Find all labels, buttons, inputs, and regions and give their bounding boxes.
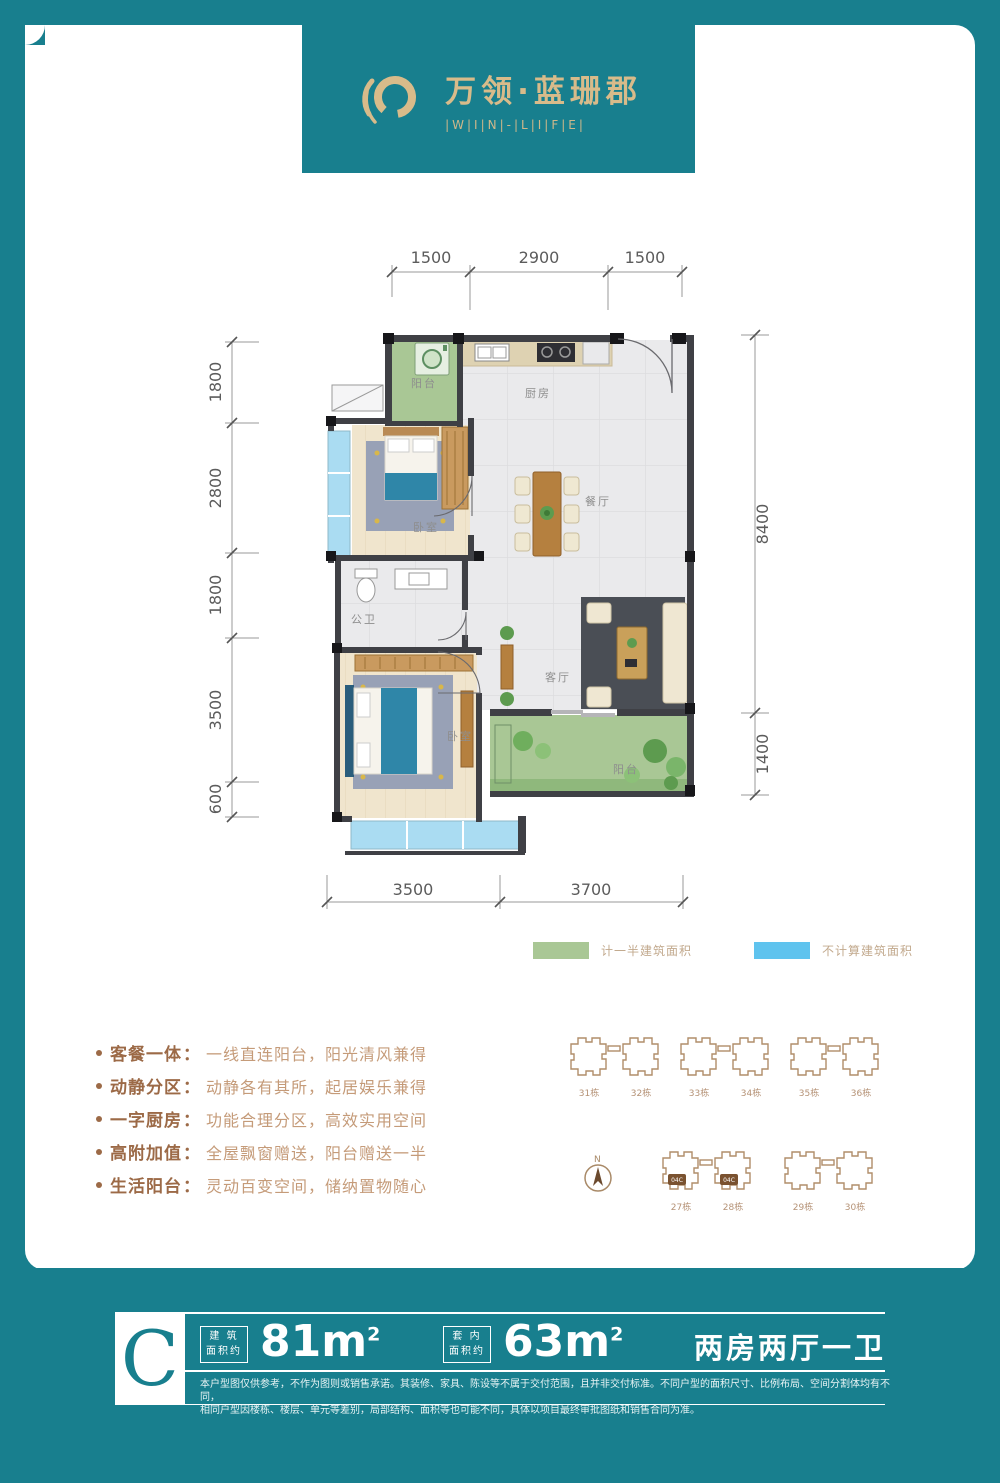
compass-icon: N (585, 1155, 611, 1191)
building-pair (681, 1038, 768, 1075)
feature-label: 客餐一体 (110, 1040, 182, 1065)
highlight-unit-label: 04C (723, 1177, 735, 1184)
washing-machine (415, 343, 449, 375)
disclaimer-line-1: 本户型图仅供参考，不作为图则或销售承诺。其装修、家具、陈设等不属于交付范围，且并… (200, 1378, 890, 1404)
vanity-sink-icon (395, 569, 447, 589)
poster: { "brand": { "title": "万领·蓝珊郡", "subtitl… (0, 0, 1000, 1483)
dim-left-3: 1800 (206, 575, 225, 616)
feature-item: 动静分区 ： 动静各有其所，起居娱乐兼得 (96, 1069, 427, 1102)
building-pair (785, 1152, 872, 1189)
room-label-dining: 餐厅 (585, 494, 611, 508)
dim-left-1: 1800 (206, 362, 225, 403)
sofa (663, 603, 687, 703)
dim-top-2: 2900 (519, 248, 560, 267)
room-label-master: 卧室 (447, 729, 473, 743)
stove-icon (537, 343, 575, 362)
legend: 计一半建筑面积 不计算建筑面积 (533, 942, 913, 959)
feature-item: 一字厨房 ： 功能合理分区，高效实用空间 (96, 1102, 427, 1135)
dim-bottom-2: 3700 (571, 880, 612, 899)
feature-item: 客餐一体 ： 一线直连阳台，阳光清风兼得 (96, 1036, 427, 1069)
legend-swatch-half-area (533, 942, 589, 959)
bedroom2-furniture (366, 427, 468, 531)
legend-label-excluded: 不计算建筑面积 (822, 942, 913, 959)
disclaimer-line-2: 相同户型因楼栋、楼层、单元等差别，局部结构、面积等也可能不同，具体以项目最终审批… (200, 1404, 890, 1417)
frame-corner (955, 1250, 975, 1270)
feature-colon: ： (183, 1172, 200, 1197)
frame-corner (25, 1250, 45, 1270)
dim-right-2: 1400 (753, 734, 772, 775)
unit-letter-box: C (115, 1312, 185, 1405)
building-label: 30栋 (845, 1201, 865, 1213)
built-area-value: 81m2 (260, 1316, 380, 1369)
feature-desc: 一线直连阳台，阳光清风兼得 (206, 1041, 427, 1065)
armchair (587, 687, 611, 707)
highlight-unit-label: 04C (671, 1177, 683, 1184)
plant-icon (500, 692, 514, 706)
inner-area-label: 套 内 面积约 (443, 1326, 491, 1363)
feature-label: 一字厨房 (110, 1106, 182, 1131)
tv-console (501, 645, 513, 689)
feature-item: 高附加值 ： 全屋飘窗赠送，阳台赠送一半 (96, 1135, 427, 1168)
feature-colon: ： (183, 1106, 200, 1131)
building-labels: 31栋 32栋 33栋 34栋 35栋 36栋 27栋 28栋 29栋 30栋 (579, 1087, 871, 1213)
building-label: 33栋 (689, 1087, 709, 1099)
feature-desc: 全屋飘窗赠送，阳台赠送一半 (206, 1140, 427, 1164)
feature-item: 生活阳台 ： 灵动百变空间，储纳置物随心 (96, 1168, 427, 1201)
bullet-icon (96, 1182, 102, 1188)
room-label-bedroom2: 卧室 (413, 520, 439, 534)
building-label: 29栋 (793, 1201, 813, 1213)
disclaimer: 本户型图仅供参考，不作为图则或销售承诺。其装修、家具、陈设等不属于交付范围，且并… (200, 1378, 890, 1417)
legend-swatch-excluded (754, 942, 810, 959)
plant-icon (500, 626, 514, 640)
dim-left-4: 3500 (206, 690, 225, 731)
floorplan: 阳台 厨房 卧室 餐厅 公卫 卧室 客厅 阳台 1500 2900 1500 1… (185, 235, 815, 935)
frame-corner (955, 25, 975, 45)
building-pair (571, 1038, 658, 1075)
dim-top-1: 1500 (411, 248, 452, 267)
built-area-label: 建 筑 面积约 (200, 1326, 248, 1363)
feature-colon: ： (183, 1040, 200, 1065)
building-label: 27栋 (671, 1201, 691, 1213)
bay-window-master (351, 821, 519, 849)
bullet-icon (96, 1149, 102, 1155)
feature-colon: ： (183, 1073, 200, 1098)
building-label: 31栋 (579, 1087, 599, 1099)
kitchen-counter (462, 340, 612, 366)
dim-top-3: 1500 (625, 248, 666, 267)
feature-list: 客餐一体 ： 一线直连阳台，阳光清风兼得 动静分区 ： 动静各有其所，起居娱乐兼… (96, 1036, 427, 1201)
planter-strip (490, 779, 688, 793)
room-label-kitchen: 厨房 (525, 387, 551, 400)
toilet-icon (355, 569, 377, 578)
unit-layout: 两房两厅一卫 (620, 1325, 886, 1367)
building-label: 36栋 (851, 1087, 871, 1099)
inner-area-value: 63m2 (503, 1316, 623, 1369)
sink-icon (475, 344, 509, 361)
feature-label: 高附加值 (110, 1139, 182, 1164)
bullet-icon (96, 1083, 102, 1089)
room-label-balcony-top: 阳台 (411, 376, 437, 390)
legend-label-half-area: 计一半建筑面积 (601, 942, 692, 959)
swirl-ring-icon (355, 62, 429, 136)
building-pair (791, 1038, 878, 1075)
bullet-icon (96, 1050, 102, 1056)
feature-desc: 功能合理分区，高效实用空间 (206, 1107, 427, 1131)
unit-letter: C (121, 1321, 179, 1397)
divider-line (185, 1370, 885, 1372)
building-label: 34栋 (741, 1087, 761, 1099)
highlight-unit-markers: 04C 04C (668, 1174, 738, 1185)
brand-title: 万领·蓝珊郡 (445, 66, 642, 111)
building-label: 28栋 (723, 1201, 743, 1213)
frame-corner (25, 25, 45, 45)
brand-header: 万领·蓝珊郡 |W|I|N|-|L|I|F|E| (302, 25, 695, 173)
dim-left-2: 2800 (206, 468, 225, 509)
feature-label: 生活阳台 (110, 1172, 182, 1197)
coffee-table (617, 627, 647, 679)
compass-n-label: N (594, 1155, 601, 1165)
room-label-balcony-bottom: 阳台 (613, 762, 639, 776)
bullet-icon (96, 1116, 102, 1122)
feature-colon: ： (183, 1139, 200, 1164)
armchair (587, 603, 611, 623)
feature-label: 动静分区 (110, 1073, 182, 1098)
brand-subtitle: |W|I|N|-|L|I|F|E| (445, 118, 642, 132)
siteplan: 04C 04C N 31栋 32栋 33栋 34栋 35栋 36栋 27栋 28… (556, 1026, 890, 1218)
room-label-living: 客厅 (545, 670, 571, 684)
dim-left-5: 600 (206, 784, 225, 815)
bay-window-bedroom2 (328, 431, 350, 559)
building-label: 32栋 (631, 1087, 651, 1099)
dim-right-1: 8400 (753, 504, 772, 545)
divider-line (185, 1312, 885, 1314)
room-label-bath: 公卫 (351, 613, 377, 626)
dim-bottom-1: 3500 (393, 880, 434, 899)
dresser (461, 691, 473, 767)
building-label: 35栋 (799, 1087, 819, 1099)
feature-desc: 灵动百变空间，储纳置物随心 (206, 1173, 427, 1197)
feature-desc: 动静各有其所，起居娱乐兼得 (206, 1074, 427, 1098)
fridge-icon (583, 342, 609, 364)
dining-set (515, 472, 579, 556)
